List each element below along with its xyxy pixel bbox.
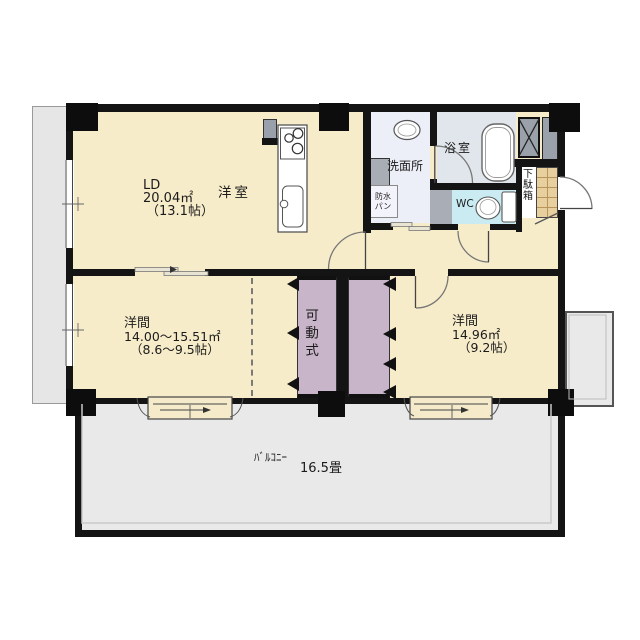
wall-left — [66, 104, 73, 404]
wall-bath-west-a — [430, 112, 437, 146]
side-balcony — [32, 106, 68, 404]
balcony-size-label: 16.5畳 — [300, 462, 342, 476]
column-mid-right — [548, 389, 574, 416]
washroom-label: 洗面所 — [387, 160, 423, 173]
bedroom-right-tatami-label: （9.2帖） — [458, 341, 515, 354]
floor-plan: 防水 パン — [0, 0, 640, 640]
wall-right-lower — [558, 210, 565, 405]
kitchen-duct — [263, 119, 277, 139]
wall-entrance-north — [514, 159, 565, 167]
wall-kitchen-stub — [262, 138, 278, 145]
ld-type-label: 洋室 — [218, 186, 251, 200]
shoe-cabinet-label: 下駄箱 — [520, 168, 531, 220]
wall-balcony-left — [75, 415, 82, 537]
ld-tatami-label: （13.1帖） — [146, 205, 214, 219]
wall-rooms-bottom — [73, 398, 558, 404]
wall-bath-south — [430, 183, 522, 190]
laundry-pan-label-2: パン — [375, 202, 391, 212]
laundry-pan: 防水 パン — [368, 185, 398, 218]
wall-wc-south-a — [430, 224, 458, 230]
column-top-left — [66, 103, 98, 131]
pipe-space-box — [518, 117, 540, 158]
column-mid-left — [66, 389, 96, 416]
door-entrance — [560, 177, 592, 209]
wall-ld-east — [363, 112, 371, 233]
wall-washroom-south — [363, 223, 393, 230]
column-top-mid — [319, 103, 349, 131]
entrance-tile — [536, 167, 558, 218]
wall-mid-b — [205, 269, 415, 276]
wall-partition-mid — [337, 276, 348, 398]
column-mid-center — [318, 391, 345, 417]
partition-label: 可動式 — [303, 308, 317, 374]
bathroom-label: 浴室 — [444, 142, 472, 155]
column-top-right — [549, 103, 580, 132]
balcony-name-label: ﾊﾞﾙｺﾆｰ — [254, 452, 287, 464]
wc-side-cabinet — [430, 190, 452, 224]
room-divider-dashed — [251, 278, 253, 396]
wall-balcony-right — [558, 415, 565, 537]
wall-balcony-bottom — [75, 530, 565, 537]
wc-label: WC — [456, 199, 474, 210]
movable-partition-right — [348, 276, 390, 398]
wall-mid-a — [73, 269, 135, 276]
wall-mid-c — [448, 269, 558, 276]
bedroom-left-tatami-label: （8.6～9.5帖） — [130, 343, 220, 356]
laundry-pan-label-1: 防水 — [375, 192, 391, 202]
